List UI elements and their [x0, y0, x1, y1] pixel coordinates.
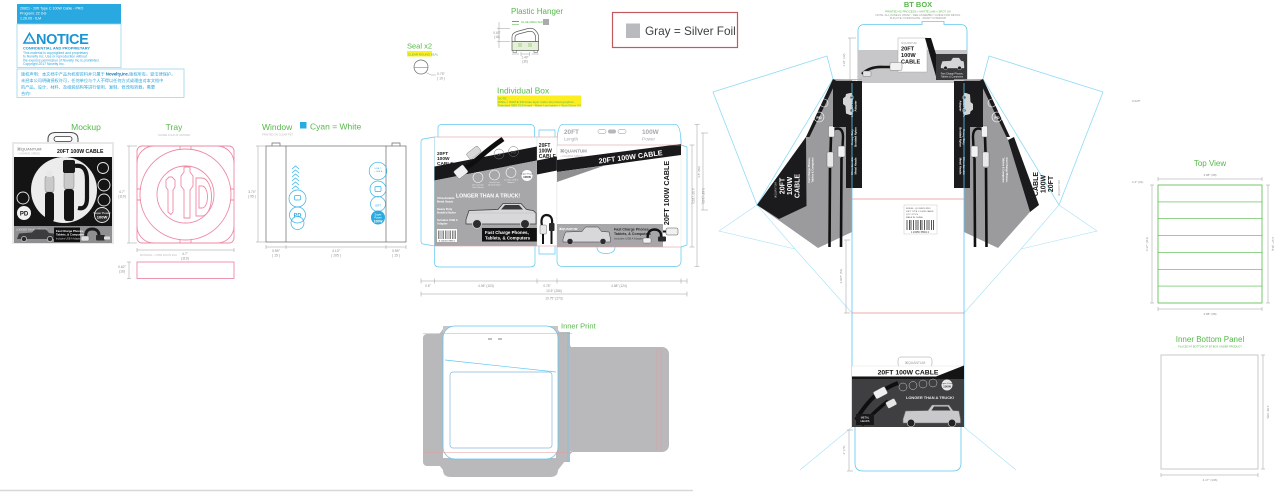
svg-text:Tablets, & Computers: Tablets, & Computers [485, 236, 531, 241]
svg-text:Fast Charge Phones,: Fast Charge Phones, [485, 230, 529, 235]
svg-text:⌘QUANTUM: ⌘QUANTUM [559, 227, 578, 231]
svg-text:QTY: 6 PCS: QTY: 6 PCS [906, 214, 918, 216]
svg-text:MATERIAL: 1.5MM WHITE EVA: MATERIAL: 1.5MM WHITE EVA [140, 253, 177, 257]
svg-text:Braided Nylon: Braided Nylon [488, 185, 501, 187]
svg-text:LONGER THAN A TRUCK!: LONGER THAN A TRUCK! [456, 194, 520, 200]
svg-text:的产品、设计、材料、及组装结构等进行使用、复制、修改和转载，: 的产品、设计、材料、及组装结构等进行使用、复制、修改和转载，需要 [21, 84, 155, 91]
svg-text:2.4" (61): 2.4" (61) [1132, 180, 1143, 184]
svg-text:CABLE: CABLE [437, 161, 454, 167]
svg-text:100W: 100W [523, 175, 531, 179]
svg-text:PRINTED ON CLEAR PET: PRINTED ON CLEAR PET [262, 133, 294, 137]
svg-text:Braided Nylon: Braided Nylon [854, 127, 858, 147]
svg-text:⌘QUANTUM: ⌘QUANTUM [560, 149, 587, 154]
svg-text:1.26.05 - ILM: 1.26.05 - ILM [20, 17, 41, 21]
svg-text:合约!: 合约! [21, 90, 31, 97]
svg-text:4.06" (103): 4.06" (103) [478, 284, 494, 288]
svg-text:1 23456 78901 2: 1 23456 78901 2 [911, 231, 930, 234]
svg-text:PD: PD [20, 212, 29, 218]
svg-text:4.17" (106): 4.17" (106) [1203, 478, 1218, 482]
svg-text:PLACED AT BOTTOM OF BT BOX UND: PLACED AT BOTTOM OF BT BOX UNDER PRODUCT [1178, 345, 1242, 349]
svg-text:4.37" (111): 4.37" (111) [1145, 237, 1149, 251]
svg-text:3.88" (98): 3.88" (98) [1203, 312, 1216, 316]
svg-text:Adapter: Adapter [437, 221, 448, 225]
svg-text:PD: PD [816, 116, 822, 120]
svg-text:20FT TYPE C 100W CABLE: 20FT TYPE C 100W CABLE [906, 210, 934, 213]
svg-text:20FT 100W CABLE: 20FT 100W CABLE [57, 149, 104, 155]
svg-text:CABLE: CABLE [901, 60, 921, 66]
svg-text:⌘QUANTUM: ⌘QUANTUM [17, 147, 42, 152]
svg-text:BT BOX: BT BOX [904, 0, 932, 9]
svg-text:Braided Nylon: Braided Nylon [437, 210, 456, 214]
svg-text:Inner Bottom Panel: Inner Bottom Panel [1176, 335, 1245, 344]
svg-text:CABLE: CABLE [795, 174, 802, 198]
svg-text:Metal Heads: Metal Heads [472, 186, 483, 189]
svg-text:20FT: 20FT [564, 129, 579, 136]
svg-text:Individual Box: Individual Box [497, 86, 550, 96]
svg-text:20FT: 20FT [780, 177, 787, 194]
svg-text:26821 - 20ft Type C 100W Cable: 26821 - 20ft Type C 100W Cable - PRO [20, 7, 83, 11]
svg-text:Window: Window [262, 122, 293, 132]
svg-text:Tablets, & Computers: Tablets, & Computers [56, 233, 85, 237]
svg-text:3.74": 3.74" [248, 190, 257, 194]
svg-text:4.7": 4.7" [119, 190, 126, 194]
svg-text:100W: 100W [901, 53, 916, 59]
svg-text:4.7": 4.7" [182, 252, 189, 256]
svg-text:1.26" (32): 1.26" (32) [842, 53, 846, 66]
svg-text:( 15 ): ( 15 ) [272, 254, 280, 258]
svg-text:0.5": 0.5" [425, 284, 431, 288]
svg-text:4.13": 4.13" [332, 249, 341, 253]
svg-text:2.007" (51): 2.007" (51) [839, 269, 843, 284]
svg-text:CONFIDENTIAL AND PROPRIETARY: CONFIDENTIAL AND PROPRIETARY [23, 46, 90, 51]
svg-text:20FT 100W CABLE: 20FT 100W CABLE [878, 370, 939, 377]
svg-text:Tablets & Computers: Tablets & Computers [941, 76, 964, 79]
svg-text:Adapter: Adapter [959, 101, 963, 113]
svg-text:(16): (16) [119, 270, 125, 274]
svg-text:Mockup: Mockup [71, 122, 101, 132]
svg-text:Metal Heads: Metal Heads [959, 158, 963, 175]
svg-text:!: ! [29, 38, 30, 44]
svg-text:LONGER THAN A TRUCK!: LONGER THAN A TRUCK! [906, 395, 954, 400]
svg-text:20FT: 20FT [375, 204, 381, 208]
svg-text:100W: 100W [1041, 174, 1048, 193]
svg-text:4.37" (111): 4.37" (111) [1271, 237, 1275, 251]
svg-text:3" (76): 3" (76) [842, 446, 846, 455]
svg-text:+ USB A: + USB A [374, 170, 383, 173]
svg-text:20FT 100W CABLE: 20FT 100W CABLE [662, 161, 671, 226]
svg-text:Braided Nylon: Braided Nylon [959, 127, 963, 147]
svg-text:20FT: 20FT [901, 47, 915, 53]
svg-text:⌘QUANTUM: ⌘QUANTUM [1057, 180, 1061, 196]
svg-text:4.02" (102): 4.02" (102) [691, 188, 695, 204]
svg-text:100W: 100W [97, 215, 108, 220]
svg-text:3.5" (89): 3.5" (89) [697, 166, 701, 177]
svg-text:⌘QUANTUM: ⌘QUANTUM [774, 182, 778, 198]
svg-text:未经本公司明确授权许可，任何单位与个人不得以任何方式或理由对: 未经本公司明确授权许可，任何单位与个人不得以任何方式或理由对本文档中 [21, 77, 163, 84]
svg-text:⌘QUANTUM: ⌘QUANTUM [905, 361, 926, 365]
svg-text:10.5" (266): 10.5" (266) [546, 289, 562, 293]
svg-text:PD: PD [994, 116, 1000, 120]
svg-text:Includes USB A Adapter: Includes USB A Adapter [614, 237, 644, 241]
svg-text:0.59": 0.59" [272, 249, 281, 253]
svg-text:Seal x2: Seal x2 [407, 42, 432, 51]
svg-text:Tablets & Computers: Tablets & Computers [812, 157, 815, 183]
svg-text:⌘QUANTUM: ⌘QUANTUM [901, 41, 917, 45]
svg-text:CABLE: CABLE [539, 154, 557, 160]
svg-text:MODEL: QC-26821-PRO: MODEL: QC-26821-PRO [906, 208, 931, 210]
svg-text:20FT: 20FT [1048, 175, 1055, 192]
svg-text:SCORE FOLD AT CENTER: SCORE FOLD AT CENTER [158, 133, 190, 137]
svg-text:CLEAR ROUND SEAL: CLEAR ROUND SEAL [408, 53, 439, 57]
svg-text:100W: 100W [374, 220, 384, 224]
svg-text:Copyright 2017 Novelty Inc.: Copyright 2017 Novelty Inc. [23, 62, 65, 66]
svg-text:0.62": 0.62" [118, 265, 127, 269]
svg-text:(119): (119) [118, 195, 126, 199]
svg-text:Tray: Tray [166, 122, 183, 132]
svg-text:Metal Heads: Metal Heads [854, 157, 858, 174]
svg-text:B-FLUTE CORRUGATE - KRAFT INTE: B-FLUTE CORRUGATE - KRAFT INTERIOR [890, 16, 946, 20]
svg-text:Standard SBS C1S board - Matte: Standard SBS C1S board - Matte Laminatio… [498, 103, 581, 107]
svg-text:Inner Print: Inner Print [561, 322, 597, 331]
svg-text:METAL: METAL [861, 416, 870, 420]
svg-text:3.86" (98): 3.86" (98) [1266, 405, 1270, 418]
svg-text:100W: 100W [787, 176, 794, 195]
svg-text:HEADS: HEADS [861, 419, 870, 423]
svg-text:(16): (16) [494, 35, 500, 39]
svg-text:Program: 22 GG: Program: 22 GG [20, 12, 47, 16]
svg-text:Top View: Top View [1194, 159, 1227, 168]
svg-text:CABLE: CABLE [1033, 172, 1040, 196]
svg-text:100W: 100W [943, 385, 951, 389]
svg-text:( 105 ): ( 105 ) [331, 254, 341, 258]
svg-text:Tablets, & Computers: Tablets, & Computers [614, 232, 651, 236]
svg-text:USB C: USB C [375, 168, 382, 170]
svg-text:10.75" (273): 10.75" (273) [545, 297, 562, 301]
svg-text:Includes USB A Adapter: Includes USB A Adapter [56, 238, 82, 241]
svg-text:(119): (119) [181, 257, 189, 261]
svg-text:⌁ CHARGE SPEED: ⌁ CHARGE SPEED [17, 152, 40, 156]
svg-text:0.75": 0.75" [437, 72, 446, 76]
svg-text:版权声明：本文档中产品为机密资料并只属于 Novelty,I: 版权声明：本文档中产品为机密资料并只属于 Novelty,Inc.版权所有，受法… [21, 71, 175, 78]
svg-text:Plastic Hanger: Plastic Hanger [511, 7, 563, 16]
svg-text:100W: 100W [642, 129, 660, 136]
svg-text:4.88" (124): 4.88" (124) [611, 284, 627, 288]
svg-text:Gray = Silver Foil: Gray = Silver Foil [645, 24, 736, 38]
svg-text:Adapter: Adapter [854, 100, 858, 112]
svg-text:PD: PD [511, 151, 517, 155]
svg-text:Adapter: Adapter [507, 181, 514, 184]
svg-text:3.88" (98): 3.88" (98) [1203, 173, 1216, 177]
svg-text:Cyan = White: Cyan = White [310, 122, 362, 132]
svg-text:0.625": 0.625" [1132, 99, 1141, 103]
svg-text:Tablets & Computers: Tablets & Computers [1002, 158, 1005, 184]
svg-text:( 15 ): ( 15 ) [392, 254, 400, 258]
svg-text:PD: PD [294, 213, 302, 219]
svg-text:(36): (36) [522, 60, 528, 64]
svg-text:0.59": 0.59" [392, 249, 401, 253]
svg-text:Length: Length [564, 137, 578, 142]
svg-text:( 95 ): ( 95 ) [248, 195, 256, 199]
svg-text:MADE IN CHINA: MADE IN CHINA [906, 216, 923, 219]
svg-text:( 19 ): ( 19 ) [437, 77, 445, 81]
svg-text:Metal Heads: Metal Heads [437, 199, 454, 203]
svg-text:0.75": 0.75" [543, 284, 550, 288]
svg-text:Power: Power [642, 137, 655, 142]
svg-text:8 12345 67890 1: 8 12345 67890 1 [439, 241, 456, 243]
